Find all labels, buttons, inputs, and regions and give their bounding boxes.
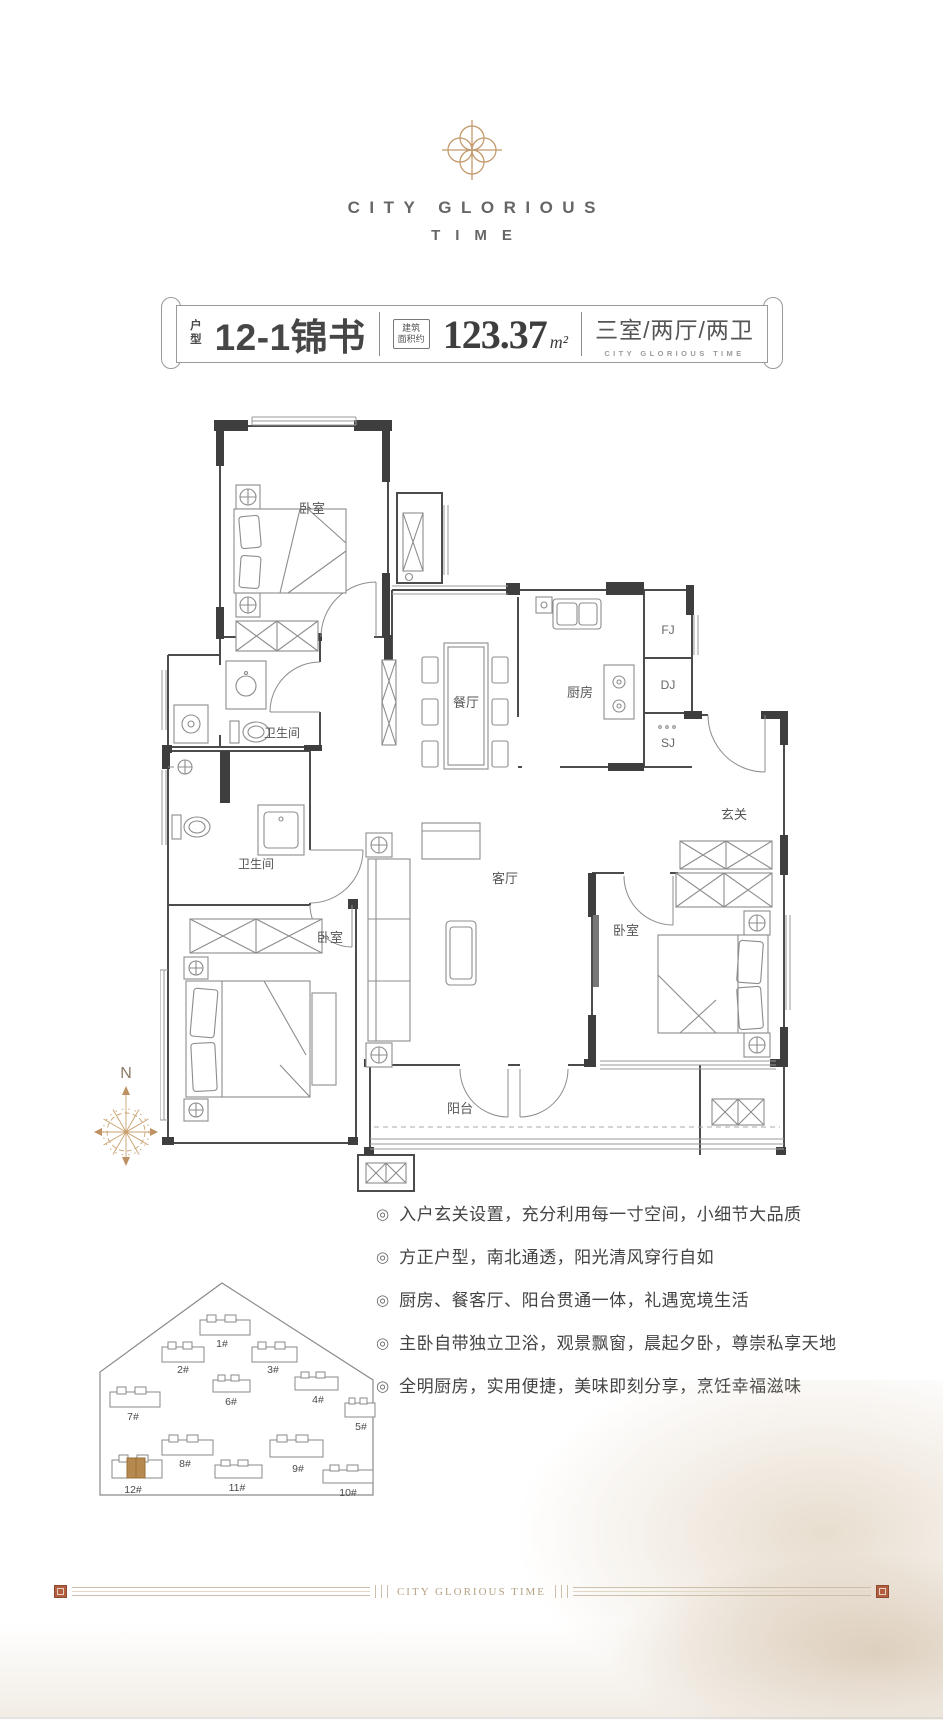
divider <box>379 312 380 356</box>
room-label-bedroom-r: 卧室 <box>613 923 639 938</box>
site-building-12-highlighted: 12# <box>112 1455 162 1496</box>
brand-name-line1: CITY GLORIOUS <box>0 198 943 218</box>
room-label-balcony: 阳台 <box>447 1101 473 1116</box>
room-label-sj: SJ <box>661 736 675 750</box>
landscape-watermark <box>513 1380 943 1720</box>
room-label-kitchen: 厨房 <box>567 685 593 700</box>
area-label-box: 建筑 面积约 <box>393 319 430 350</box>
bullet-icon: ◎ <box>376 1290 389 1312</box>
svg-text:1#: 1# <box>216 1338 228 1350</box>
bullet-icon: ◎ <box>376 1204 389 1226</box>
unit-name: 12-1锦书 <box>215 307 366 361</box>
footer-line <box>573 1587 871 1596</box>
site-building-6: 6# <box>213 1375 250 1408</box>
svg-text:10#: 10# <box>339 1487 357 1499</box>
svg-text:5#: 5# <box>355 1421 367 1433</box>
site-plan: 1# 2# 3# 6# 4# 7# 5# 8# 9# <box>95 1275 385 1505</box>
site-building-4: 4# <box>295 1372 338 1406</box>
site-building-1: 1# <box>200 1315 250 1350</box>
svg-text:3#: 3# <box>267 1364 279 1376</box>
svg-text:2#: 2# <box>177 1364 189 1376</box>
room-label-living: 客厅 <box>492 871 518 886</box>
room-label-bedroom-tl: 卧室 <box>299 501 325 516</box>
layout-summary: 三室/两厅/两卫 CITY GLORIOUS TIME <box>595 311 754 358</box>
feature-item: ◎ 主卧自带独立卫浴，观景飘窗，晨起夕卧，尊崇私享天地 <box>376 1333 896 1355</box>
room-label-dj: DJ <box>661 678 676 692</box>
rosette-icon <box>440 118 504 182</box>
svg-text:7#: 7# <box>127 1411 139 1423</box>
room-label-bedroom-bl: 卧室 <box>317 930 343 945</box>
footer-rule: CITY GLORIOUS TIME <box>54 1583 889 1600</box>
feature-item: ◎ 入户玄关设置，充分利用每一寸空间，小细节大品质 <box>376 1204 896 1226</box>
bullet-icon: ◎ <box>376 1333 389 1355</box>
seal-icon <box>876 1585 889 1598</box>
feature-list: ◎ 入户玄关设置，充分利用每一寸空间，小细节大品质 ◎ 方正户型，南北通透，阳光… <box>376 1204 896 1419</box>
footer-bars-icon <box>375 1585 388 1598</box>
site-building-5: 5# <box>345 1398 375 1433</box>
site-building-11: 11# <box>215 1460 262 1494</box>
footer-brand-text: CITY GLORIOUS TIME <box>393 1586 550 1598</box>
feature-item: ◎ 厨房、餐客厅、阳台贯通一体，礼遇宽境生活 <box>376 1290 896 1312</box>
svg-text:11#: 11# <box>229 1482 246 1494</box>
compass-spokes-icon <box>100 1095 152 1158</box>
svg-text:4#: 4# <box>312 1394 324 1406</box>
type-label: 户 型 <box>190 320 202 348</box>
bullet-icon: ◎ <box>376 1247 389 1269</box>
room-label-fj: FJ <box>661 623 674 637</box>
landscape-watermark <box>0 1622 943 1717</box>
floor-plan: 卧室 卫生间 卫生间 卧室 餐厅 厨房 FJ DJ SJ 玄关 卧室 客厅 阳台 <box>160 415 800 1195</box>
poster-page: { "brand": { "line1": "CITY GLORIOUS", "… <box>0 0 943 1719</box>
site-building-7: 7# <box>110 1387 160 1423</box>
site-building-9: 9# <box>270 1435 323 1475</box>
area-value: 123.37 <box>443 311 547 358</box>
brand-name-line2: TIME <box>0 227 943 244</box>
banner-bar: 户 型 12-1锦书 建筑 面积约 123.37 m² 三室/两厅/两卫 CIT… <box>176 305 768 363</box>
area-unit: m² <box>550 332 568 353</box>
svg-text:8#: 8# <box>179 1458 191 1470</box>
footer-line <box>72 1587 370 1596</box>
site-building-2: 2# <box>162 1342 204 1376</box>
compass-rose: N <box>86 1060 166 1176</box>
site-building-3: 3# <box>252 1342 297 1376</box>
site-building-10: 10# <box>323 1465 373 1499</box>
room-label-dining: 餐厅 <box>453 695 479 710</box>
brand-logo: CITY GLORIOUS TIME <box>0 118 943 244</box>
divider <box>581 312 582 356</box>
bullet-icon: ◎ <box>376 1376 389 1398</box>
area-value-group: 123.37 m² <box>443 311 568 358</box>
site-building-8: 8# <box>162 1435 213 1470</box>
landscape-watermark <box>613 1555 943 1720</box>
north-label: N <box>120 1065 132 1082</box>
svg-text:12#: 12# <box>124 1484 142 1496</box>
room-label-entry: 玄关 <box>721 807 747 822</box>
svg-text:9#: 9# <box>292 1463 304 1475</box>
feature-item: ◎ 全明厨房，实用便捷，美味即刻分享，烹饪幸福滋味 <box>376 1376 896 1398</box>
feature-item: ◎ 方正户型，南北通透，阳光清风穿行自如 <box>376 1247 896 1269</box>
footer-bars-icon <box>555 1585 568 1598</box>
seal-icon <box>54 1585 67 1598</box>
room-label-bath-mid: 卫生间 <box>238 857 274 871</box>
room-label-bath-upper: 卫生间 <box>264 726 300 740</box>
title-banner: 户 型 12-1锦书 建筑 面积约 123.37 m² 三室/两厅/两卫 CIT… <box>161 296 783 370</box>
svg-text:6#: 6# <box>225 1396 237 1408</box>
